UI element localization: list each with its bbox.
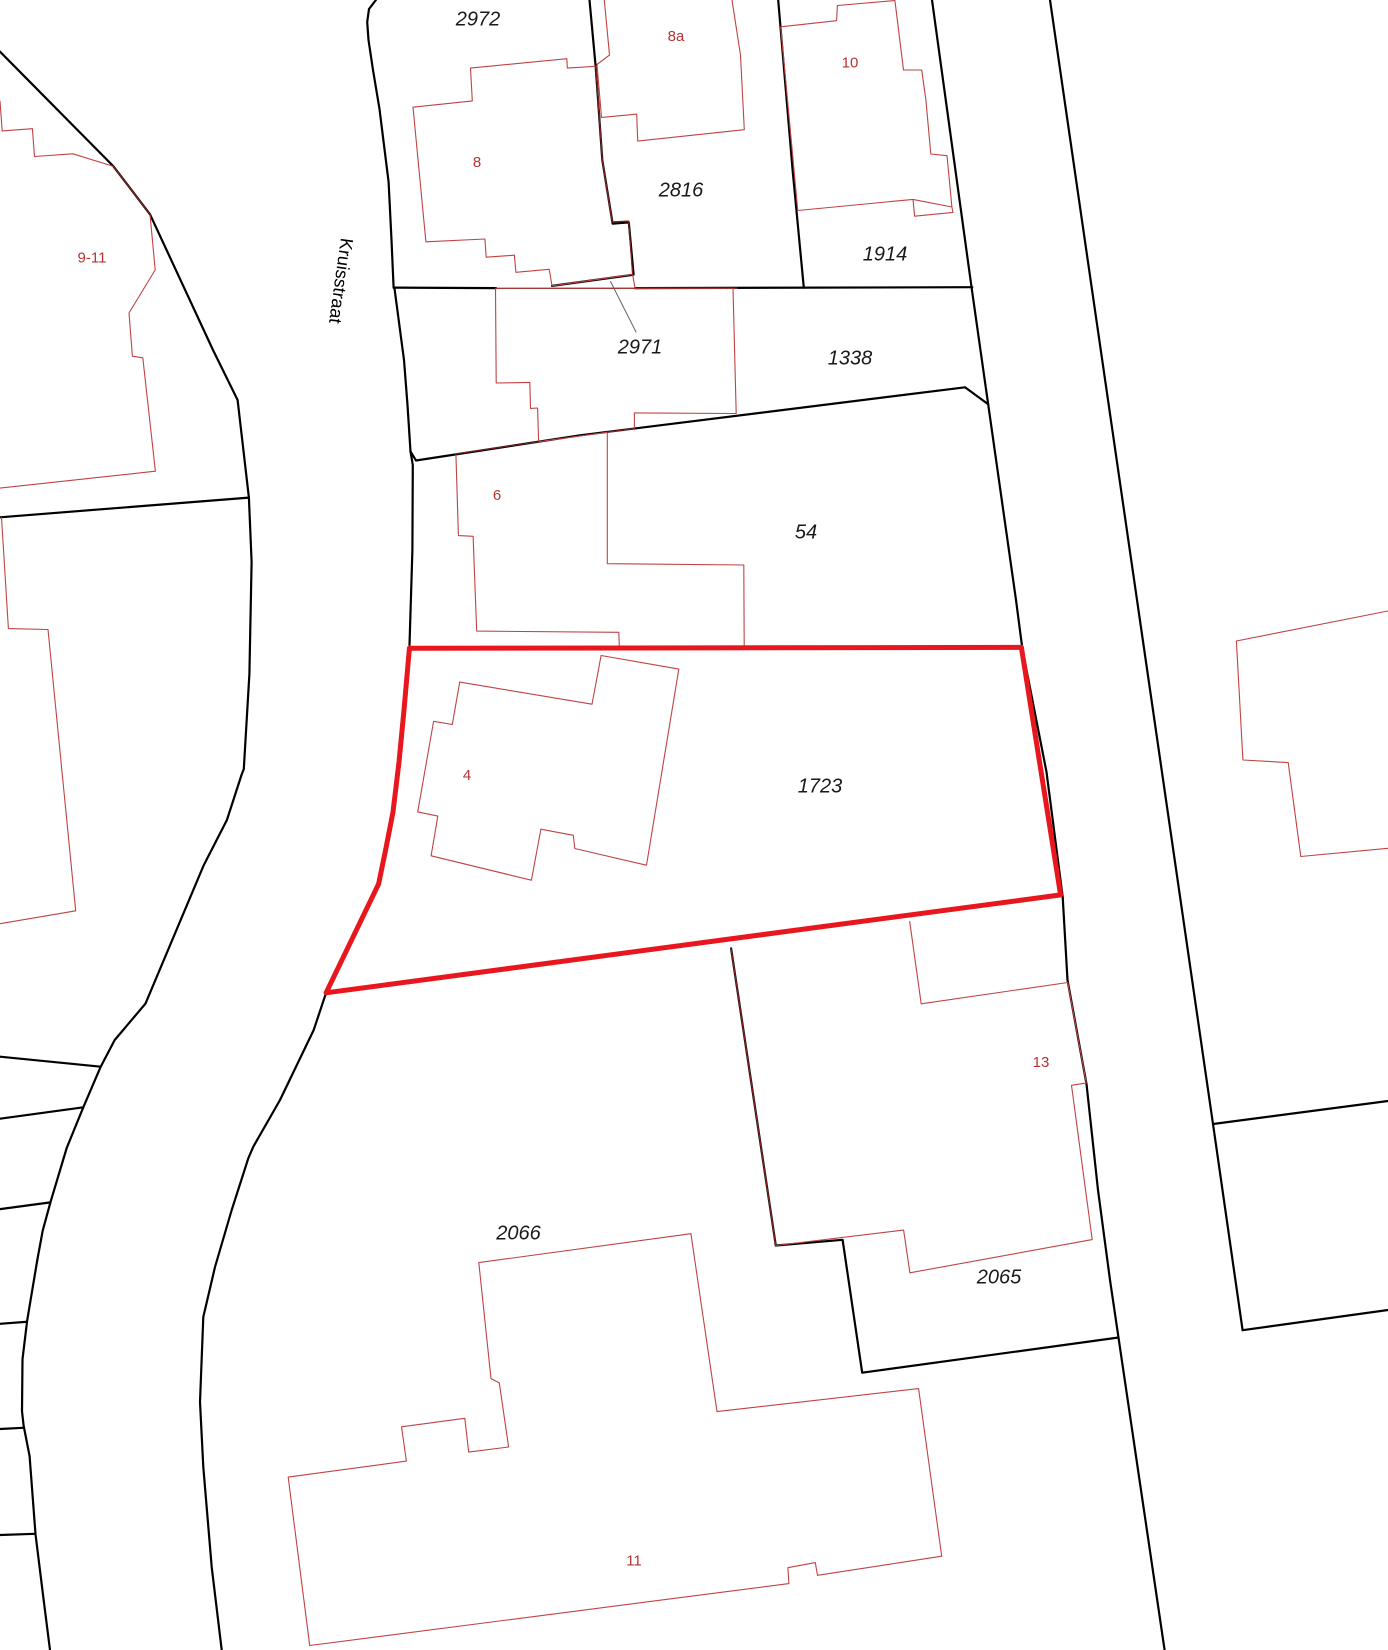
svg-text:10: 10 [842,55,859,72]
svg-text:54: 54 [795,522,817,544]
svg-text:9-11: 9-11 [78,250,107,267]
svg-text:1338: 1338 [828,347,873,369]
svg-text:13: 13 [1033,1054,1050,1071]
svg-text:4: 4 [463,767,471,784]
svg-text:11: 11 [626,1553,642,1570]
svg-text:2816: 2816 [658,180,704,202]
svg-text:2971: 2971 [617,337,663,359]
svg-text:1723: 1723 [798,776,843,798]
svg-text:2972: 2972 [455,9,501,31]
svg-text:8a: 8a [668,28,685,45]
svg-text:2066: 2066 [495,1223,541,1245]
svg-text:1914: 1914 [863,243,908,265]
svg-text:8: 8 [473,154,481,171]
svg-text:2065: 2065 [976,1267,1022,1289]
svg-text:6: 6 [493,487,501,504]
